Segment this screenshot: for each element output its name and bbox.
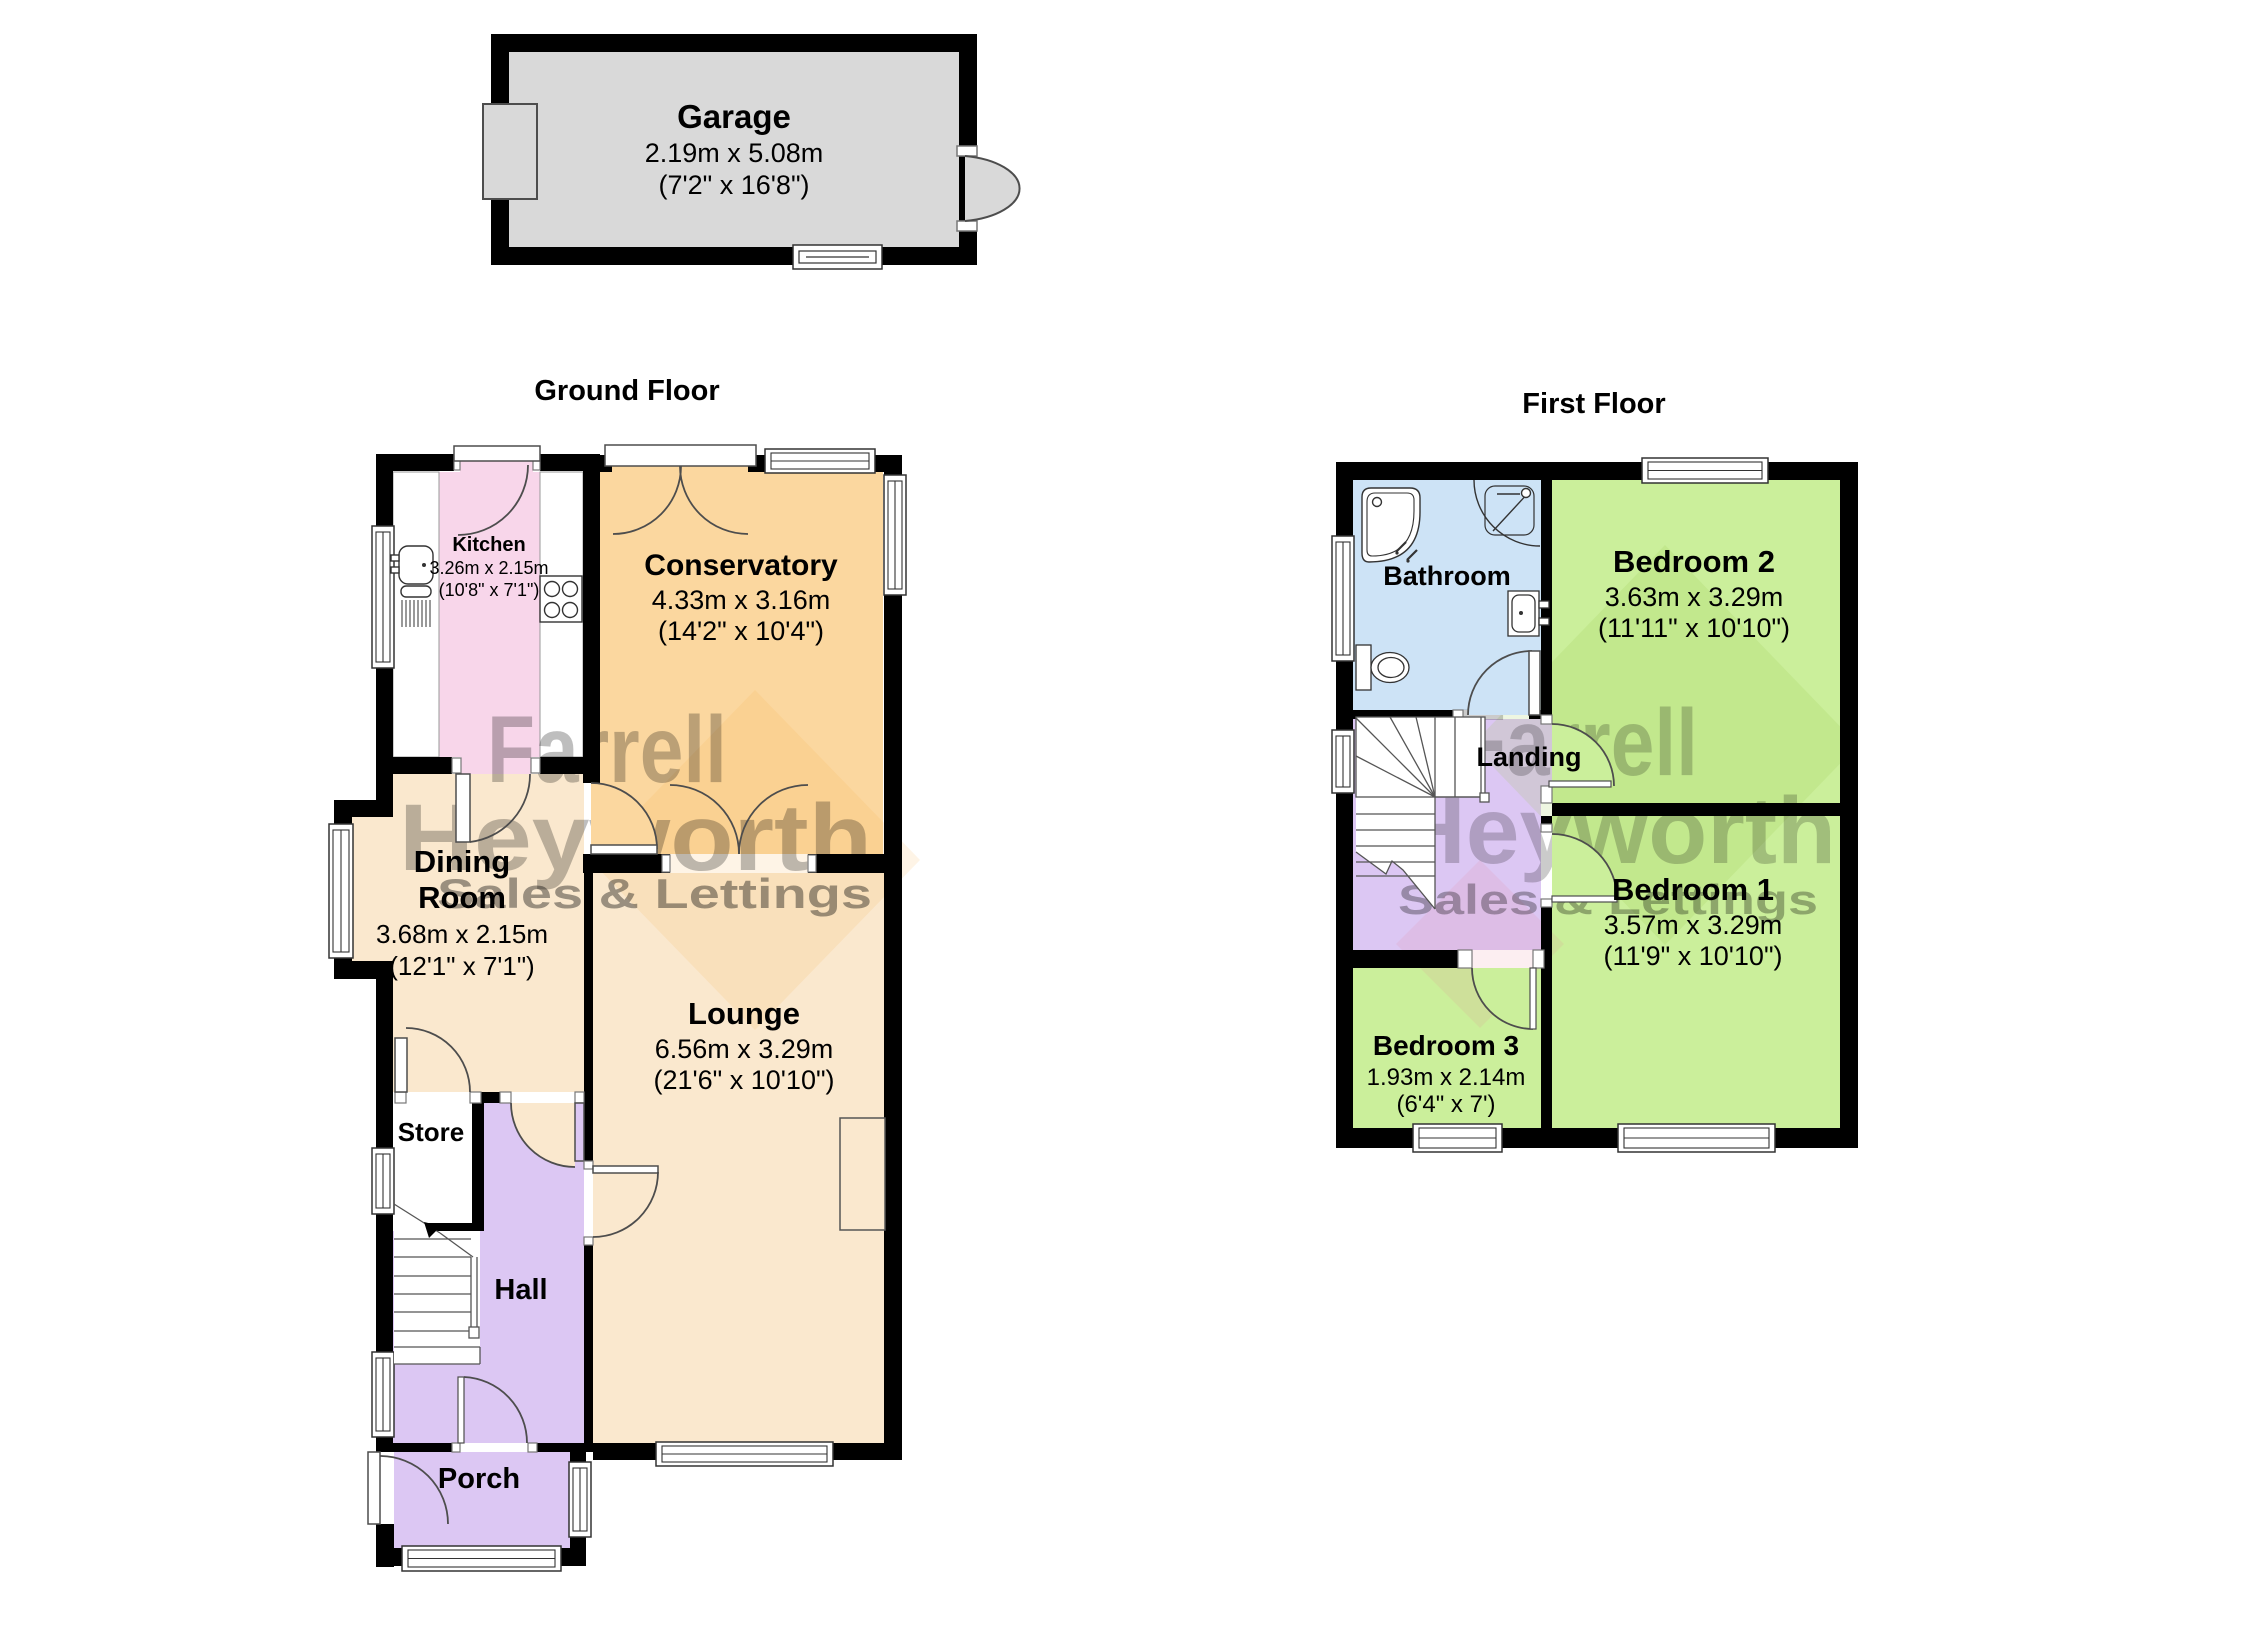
svg-text:1.93m x 2.14m: 1.93m x 2.14m [1367, 1064, 1526, 1091]
svg-text:Bedroom 1: Bedroom 1 [1612, 872, 1774, 907]
svg-text:Porch: Porch [438, 1463, 520, 1495]
svg-text:(7'2" x 16'8"): (7'2" x 16'8") [658, 170, 809, 200]
svg-text:(10'8" x 7'1"): (10'8" x 7'1") [439, 580, 540, 600]
svg-text:Bedroom 2: Bedroom 2 [1613, 544, 1775, 579]
svg-text:4.33m x 3.16m: 4.33m x 3.16m [652, 585, 831, 615]
svg-text:3.63m x 3.29m: 3.63m x 3.29m [1605, 582, 1784, 612]
svg-text:Store: Store [398, 1117, 464, 1147]
svg-text:Dining: Dining [414, 844, 510, 879]
svg-text:3.68m x 2.15m: 3.68m x 2.15m [376, 919, 548, 949]
svg-text:(21'6" x 10'10"): (21'6" x 10'10") [653, 1065, 834, 1095]
svg-text:Conservatory: Conservatory [644, 549, 838, 582]
svg-text:(11'9" x 10'10"): (11'9" x 10'10") [1603, 941, 1782, 971]
svg-text:First Floor: First Floor [1522, 388, 1665, 420]
svg-text:Lounge: Lounge [688, 996, 800, 1031]
svg-text:Garage: Garage [677, 98, 791, 135]
svg-text:(12'1" x 7'1"): (12'1" x 7'1") [389, 951, 534, 981]
svg-text:Ground Floor: Ground Floor [534, 375, 719, 407]
svg-text:(11'11" x 10'10"): (11'11" x 10'10") [1598, 613, 1790, 643]
svg-text:3.57m x 3.29m: 3.57m x 3.29m [1604, 910, 1783, 940]
svg-text:Bedroom 3: Bedroom 3 [1373, 1030, 1519, 1061]
svg-text:Room: Room [418, 880, 506, 915]
svg-text:Landing: Landing [1477, 742, 1582, 772]
svg-text:6.56m x 3.29m: 6.56m x 3.29m [655, 1034, 834, 1064]
svg-text:Bathroom: Bathroom [1383, 561, 1511, 591]
svg-text:3.26m x 2.15m: 3.26m x 2.15m [429, 558, 548, 578]
svg-text:(14'2" x 10'4"): (14'2" x 10'4") [658, 616, 824, 646]
svg-text:(6'4" x 7'): (6'4" x 7') [1396, 1091, 1495, 1118]
svg-text:Hall: Hall [494, 1274, 547, 1306]
svg-text:Kitchen: Kitchen [452, 534, 525, 556]
svg-text:2.19m x 5.08m: 2.19m x 5.08m [645, 138, 824, 168]
